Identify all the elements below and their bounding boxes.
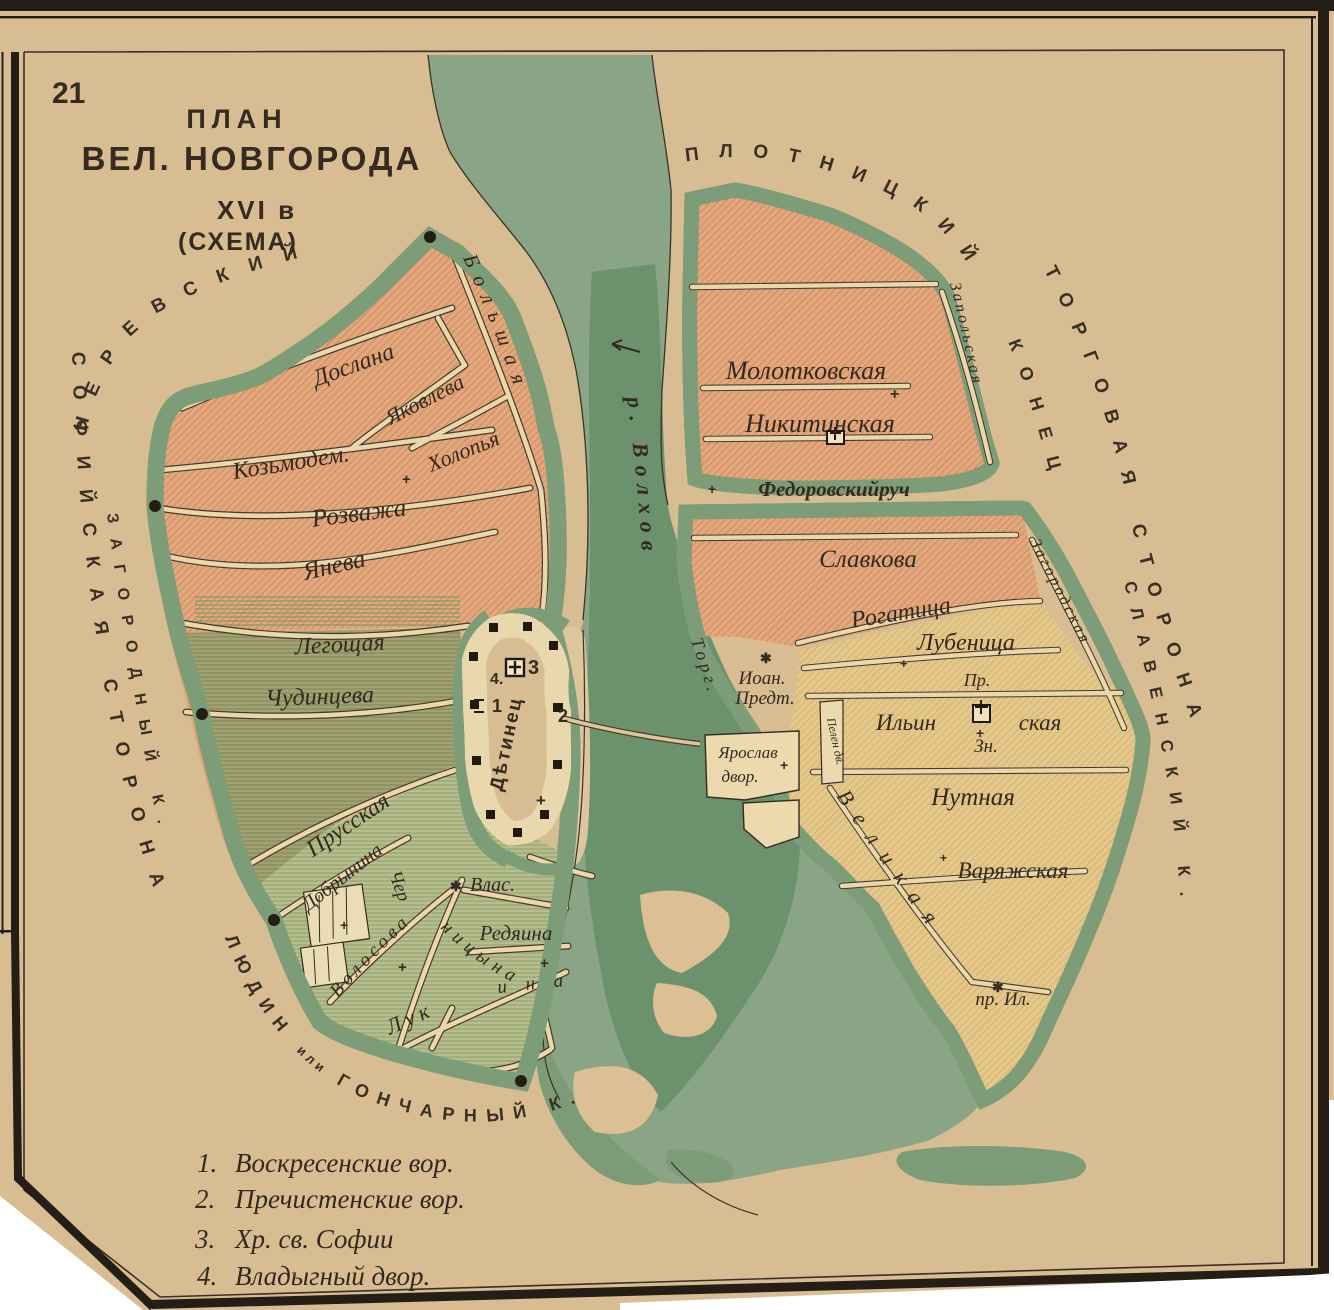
svg-text:+: + bbox=[900, 656, 908, 671]
svg-text:+: + bbox=[940, 851, 947, 865]
svg-text:2.: 2. bbox=[195, 1184, 215, 1214]
svg-text:Варяжская: Варяжская bbox=[958, 858, 1069, 883]
svg-text:ПЛАН: ПЛАН bbox=[186, 104, 287, 134]
svg-text:Нутная: Нутная bbox=[930, 784, 1015, 811]
svg-text:ская: ская bbox=[1019, 710, 1062, 735]
svg-text:Хр. св. Софии: Хр. св. Софии bbox=[234, 1224, 394, 1254]
svg-text:Влас.: Влас. bbox=[470, 874, 515, 896]
svg-text:Ильин: Ильин bbox=[875, 710, 936, 735]
svg-text:21: 21 bbox=[52, 77, 85, 110]
svg-text:+: + bbox=[536, 791, 546, 810]
svg-text:+: + bbox=[398, 959, 407, 976]
svg-text:3.: 3. bbox=[194, 1224, 215, 1254]
svg-text:+: + bbox=[540, 955, 549, 972]
svg-text:2: 2 bbox=[558, 706, 568, 726]
svg-text:Редяина: Редяина bbox=[479, 921, 553, 945]
svg-text:ВЕЛ. НОВГОРОДА: ВЕЛ. НОВГОРОДА bbox=[82, 140, 423, 177]
svg-text:✱: ✱ bbox=[450, 878, 462, 894]
svg-text:Молотковская: Молотковская bbox=[725, 356, 886, 385]
svg-text:+: + bbox=[340, 917, 348, 933]
svg-text:Иоан.: Иоан. bbox=[738, 668, 786, 689]
svg-text:+: + bbox=[890, 386, 899, 403]
svg-text:Пр.: Пр. bbox=[963, 670, 991, 690]
svg-text:Славкова: Славкова bbox=[819, 546, 917, 573]
svg-text:1.: 1. bbox=[197, 1148, 217, 1178]
svg-text:Предт.: Предт. bbox=[734, 688, 795, 709]
svg-text:3: 3 bbox=[528, 657, 539, 679]
svg-text:XVI в: XVI в bbox=[217, 195, 297, 225]
svg-text:+: + bbox=[780, 757, 788, 773]
svg-text:✱: ✱ bbox=[992, 979, 1004, 995]
svg-text:✱: ✱ bbox=[760, 650, 772, 666]
svg-text:Пречистенские вор.: Пречистенские вор. bbox=[234, 1184, 465, 1214]
svg-text:Ярослав: Ярослав bbox=[717, 743, 778, 762]
svg-text:4.: 4. bbox=[197, 1261, 217, 1291]
svg-text:Легощая: Легощая bbox=[293, 630, 385, 661]
svg-text:двор.: двор. bbox=[721, 767, 758, 786]
svg-text:1: 1 bbox=[492, 696, 502, 716]
svg-text:4.: 4. bbox=[490, 671, 503, 688]
svg-text:Лубеница: Лубеница bbox=[916, 630, 1015, 656]
svg-text:Никитинская: Никитинская bbox=[744, 409, 895, 438]
svg-text:Владыгный двор.: Владыгный двор. bbox=[235, 1261, 430, 1291]
svg-text:+: + bbox=[402, 471, 411, 488]
svg-text:Чудинцева: Чудинцева bbox=[265, 682, 375, 712]
svg-text:(СХЕМА): (СХЕМА) bbox=[178, 228, 298, 256]
svg-text:Воскресенские вор.: Воскресенские вор. bbox=[235, 1148, 454, 1178]
svg-text:Зн.: Зн. bbox=[974, 736, 998, 757]
svg-text:+: + bbox=[708, 481, 716, 497]
svg-text:Федоровскийруч: Федоровскийруч bbox=[758, 477, 910, 501]
